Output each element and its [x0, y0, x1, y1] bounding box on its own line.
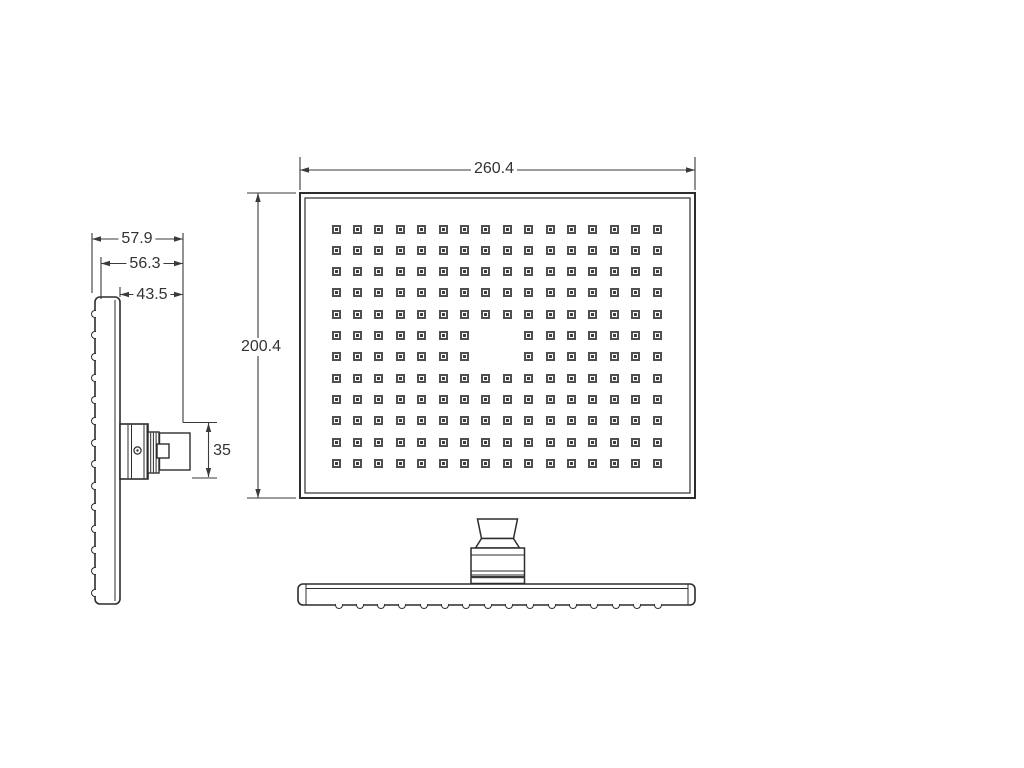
nozzle: [417, 331, 426, 340]
nozzle: [460, 459, 469, 468]
nozzle: [653, 374, 662, 383]
side-slab: [95, 297, 120, 604]
nozzle: [567, 267, 576, 276]
bottom-nozzle-bump: [335, 604, 343, 609]
nozzle: [332, 225, 341, 234]
nozzle: [332, 310, 341, 319]
nozzle: [653, 331, 662, 340]
nozzle: [567, 352, 576, 361]
nozzle: [374, 374, 383, 383]
nozzle: [460, 416, 469, 425]
nozzle: [353, 225, 362, 234]
side-nozzle-bump: [91, 310, 96, 318]
nozzle: [653, 459, 662, 468]
nozzle: [396, 395, 405, 404]
nozzle: [653, 225, 662, 234]
nozzle: [460, 374, 469, 383]
nozzle: [631, 246, 640, 255]
nozzle: [353, 310, 362, 319]
side-nozzle-bump: [91, 331, 96, 339]
nozzle: [332, 352, 341, 361]
nozzle: [374, 395, 383, 404]
nozzle: [460, 352, 469, 361]
nozzle: [439, 459, 448, 468]
nozzle: [332, 246, 341, 255]
nozzle: [567, 395, 576, 404]
nozzle: [631, 225, 640, 234]
dim-label-front-height: 200.4: [238, 338, 284, 356]
nozzle: [439, 374, 448, 383]
nozzle: [524, 395, 533, 404]
side-nozzle-bump: [91, 482, 96, 490]
nozzle: [396, 438, 405, 447]
nozzle: [524, 331, 533, 340]
nozzle: [524, 459, 533, 468]
arrowhead-down: [255, 489, 260, 498]
nozzle: [396, 459, 405, 468]
nozzle: [460, 395, 469, 404]
nozzle: [481, 288, 490, 297]
nozzle: [353, 267, 362, 276]
nozzle: [610, 395, 619, 404]
nozzle: [653, 395, 662, 404]
dim-label-side-depth-inner: 43.5: [133, 286, 170, 304]
nozzle: [481, 267, 490, 276]
side-nozzle-bump: [91, 353, 96, 361]
nozzle: [374, 288, 383, 297]
bottom-slab: [298, 584, 695, 605]
side-nozzle-bump: [91, 460, 96, 468]
nozzle: [524, 352, 533, 361]
nozzle: [631, 438, 640, 447]
dim-label-side-depth-mid: 56.3: [126, 255, 163, 273]
nozzle: [481, 225, 490, 234]
nozzle: [353, 459, 362, 468]
nozzle: [567, 438, 576, 447]
nozzle: [332, 267, 341, 276]
nozzle: [332, 416, 341, 425]
nozzle: [503, 310, 512, 319]
nozzle: [610, 459, 619, 468]
side-nozzle-bump: [91, 589, 96, 597]
nozzle: [396, 310, 405, 319]
nozzle: [588, 459, 597, 468]
nozzle: [481, 438, 490, 447]
nozzle: [524, 416, 533, 425]
nozzle: [546, 288, 555, 297]
nozzle: [524, 288, 533, 297]
nozzle: [353, 395, 362, 404]
nozzle: [481, 416, 490, 425]
nozzle: [524, 267, 533, 276]
nozzle: [610, 267, 619, 276]
nozzle: [546, 310, 555, 319]
nozzle: [503, 267, 512, 276]
nozzle: [353, 374, 362, 383]
nozzle: [417, 395, 426, 404]
nozzle: [503, 288, 512, 297]
nozzle: [610, 374, 619, 383]
dim-label-side-depth-total: 57.9: [118, 230, 155, 248]
nozzle: [567, 416, 576, 425]
nozzle: [439, 225, 448, 234]
nozzle: [653, 438, 662, 447]
nozzle: [396, 267, 405, 276]
nozzle: [396, 288, 405, 297]
nozzle: [546, 225, 555, 234]
nozzle: [396, 225, 405, 234]
nozzle: [353, 246, 362, 255]
arrowhead-left: [300, 167, 309, 172]
nozzle: [653, 416, 662, 425]
nozzle: [417, 225, 426, 234]
nozzle: [460, 438, 469, 447]
nozzle: [374, 416, 383, 425]
nozzle: [417, 374, 426, 383]
arrowhead-right: [686, 167, 695, 172]
nozzle: [631, 331, 640, 340]
nozzle: [610, 331, 619, 340]
bottom-connector-flare: [476, 539, 520, 549]
nozzle: [374, 310, 383, 319]
nozzle: [374, 459, 383, 468]
nozzle: [610, 310, 619, 319]
arrowhead-up: [255, 193, 260, 202]
nozzle: [374, 225, 383, 234]
nozzle: [567, 246, 576, 255]
nozzle: [524, 246, 533, 255]
nozzle: [332, 459, 341, 468]
side-nozzle-bump: [91, 396, 96, 404]
nozzle: [653, 288, 662, 297]
nozzle: [503, 374, 512, 383]
cylinder-groove: [471, 576, 525, 578]
arrowhead-up: [206, 423, 211, 432]
nozzle: [631, 288, 640, 297]
nozzle: [332, 374, 341, 383]
nozzle: [546, 395, 555, 404]
nozzle: [396, 416, 405, 425]
nozzle: [610, 352, 619, 361]
side-nozzle-bump: [91, 439, 96, 447]
nozzle: [439, 246, 448, 255]
nozzle: [460, 310, 469, 319]
nozzle: [546, 352, 555, 361]
nozzle: [610, 225, 619, 234]
nozzle: [503, 416, 512, 425]
nozzle: [567, 225, 576, 234]
nozzle: [439, 438, 448, 447]
nozzle: [396, 331, 405, 340]
side-nozzle-bump: [91, 417, 96, 425]
nozzle: [524, 225, 533, 234]
nozzle: [481, 395, 490, 404]
nozzle: [653, 352, 662, 361]
nozzle: [439, 416, 448, 425]
nozzle: [460, 225, 469, 234]
nozzle: [374, 438, 383, 447]
nozzle: [631, 267, 640, 276]
nozzle: [417, 416, 426, 425]
nozzle: [588, 331, 597, 340]
nozzle: [588, 267, 597, 276]
nozzle: [332, 395, 341, 404]
technical-drawing-canvas: 260.4 200.4 57.9 56.3 43.5 35: [0, 0, 1024, 768]
nozzle: [546, 331, 555, 340]
arrowhead-down: [206, 468, 211, 477]
nozzle: [374, 246, 383, 255]
nozzle: [588, 395, 597, 404]
nozzle: [524, 438, 533, 447]
nozzle: [417, 310, 426, 319]
nozzle: [588, 352, 597, 361]
side-inlet-tab: [157, 444, 169, 458]
nozzle: [524, 310, 533, 319]
nozzle: [546, 416, 555, 425]
nozzle: [503, 438, 512, 447]
nozzle: [374, 331, 383, 340]
nozzle: [353, 288, 362, 297]
nozzle: [439, 395, 448, 404]
nozzle: [631, 416, 640, 425]
nozzle: [460, 246, 469, 255]
nozzle: [567, 331, 576, 340]
nozzle: [481, 459, 490, 468]
nozzle: [353, 438, 362, 447]
nozzle: [460, 267, 469, 276]
side-nozzle-bump: [91, 567, 96, 575]
nozzle: [567, 310, 576, 319]
nozzle: [546, 459, 555, 468]
nozzle: [460, 331, 469, 340]
nozzle: [610, 288, 619, 297]
nozzle: [439, 288, 448, 297]
nozzle: [332, 331, 341, 340]
nozzle: [610, 416, 619, 425]
nozzle: [588, 225, 597, 234]
side-nozzle-bump: [91, 525, 96, 533]
nozzle: [567, 459, 576, 468]
nozzle: [610, 438, 619, 447]
side-nozzle-bump: [91, 546, 96, 554]
nozzle: [417, 288, 426, 297]
nozzle: [417, 267, 426, 276]
nozzle: [653, 246, 662, 255]
nozzle: [588, 438, 597, 447]
side-nozzle-bump: [91, 503, 96, 511]
nozzle: [546, 267, 555, 276]
nozzle: [481, 374, 490, 383]
nozzle: [439, 310, 448, 319]
nozzle: [396, 246, 405, 255]
nozzle: [631, 310, 640, 319]
nozzle: [524, 374, 533, 383]
nozzle: [417, 246, 426, 255]
nozzle: [332, 438, 341, 447]
nozzle: [610, 246, 619, 255]
nozzle: [460, 288, 469, 297]
nozzle: [374, 267, 383, 276]
nozzle: [332, 288, 341, 297]
nozzle: [653, 267, 662, 276]
nozzle: [439, 267, 448, 276]
dim-label-front-width: 260.4: [471, 160, 517, 178]
bottom-view: [298, 519, 695, 605]
nozzle: [588, 374, 597, 383]
nozzle: [631, 459, 640, 468]
side-nozzle-bump: [91, 374, 96, 382]
nozzle: [631, 374, 640, 383]
nozzle: [588, 310, 597, 319]
nozzle: [503, 395, 512, 404]
nozzle: [567, 288, 576, 297]
nozzle: [653, 310, 662, 319]
nozzle: [588, 246, 597, 255]
nozzle: [503, 225, 512, 234]
nozzle: [481, 310, 490, 319]
bottom-connector-cup: [478, 519, 518, 539]
nozzle: [546, 246, 555, 255]
front-view: [300, 193, 695, 498]
front-panel-outer: [300, 193, 695, 498]
nozzle: [588, 416, 597, 425]
nozzle: [631, 395, 640, 404]
nozzle: [353, 352, 362, 361]
nozzle: [631, 352, 640, 361]
nozzle: [439, 331, 448, 340]
nozzle: [353, 331, 362, 340]
nozzle: [567, 374, 576, 383]
dim-label-connector-height: 35: [210, 442, 234, 460]
nozzle: [417, 352, 426, 361]
drawing-linework: [0, 0, 1024, 768]
nozzle: [396, 374, 405, 383]
nozzle: [353, 416, 362, 425]
nozzle: [503, 459, 512, 468]
nozzle: [417, 459, 426, 468]
nozzle: [374, 352, 383, 361]
nozzle: [546, 438, 555, 447]
nozzle: [439, 352, 448, 361]
nozzle: [481, 246, 490, 255]
nozzle: [546, 374, 555, 383]
nozzle: [588, 288, 597, 297]
nozzle: [417, 438, 426, 447]
side-view: [95, 297, 190, 604]
nozzle: [503, 246, 512, 255]
nozzle: [396, 352, 405, 361]
